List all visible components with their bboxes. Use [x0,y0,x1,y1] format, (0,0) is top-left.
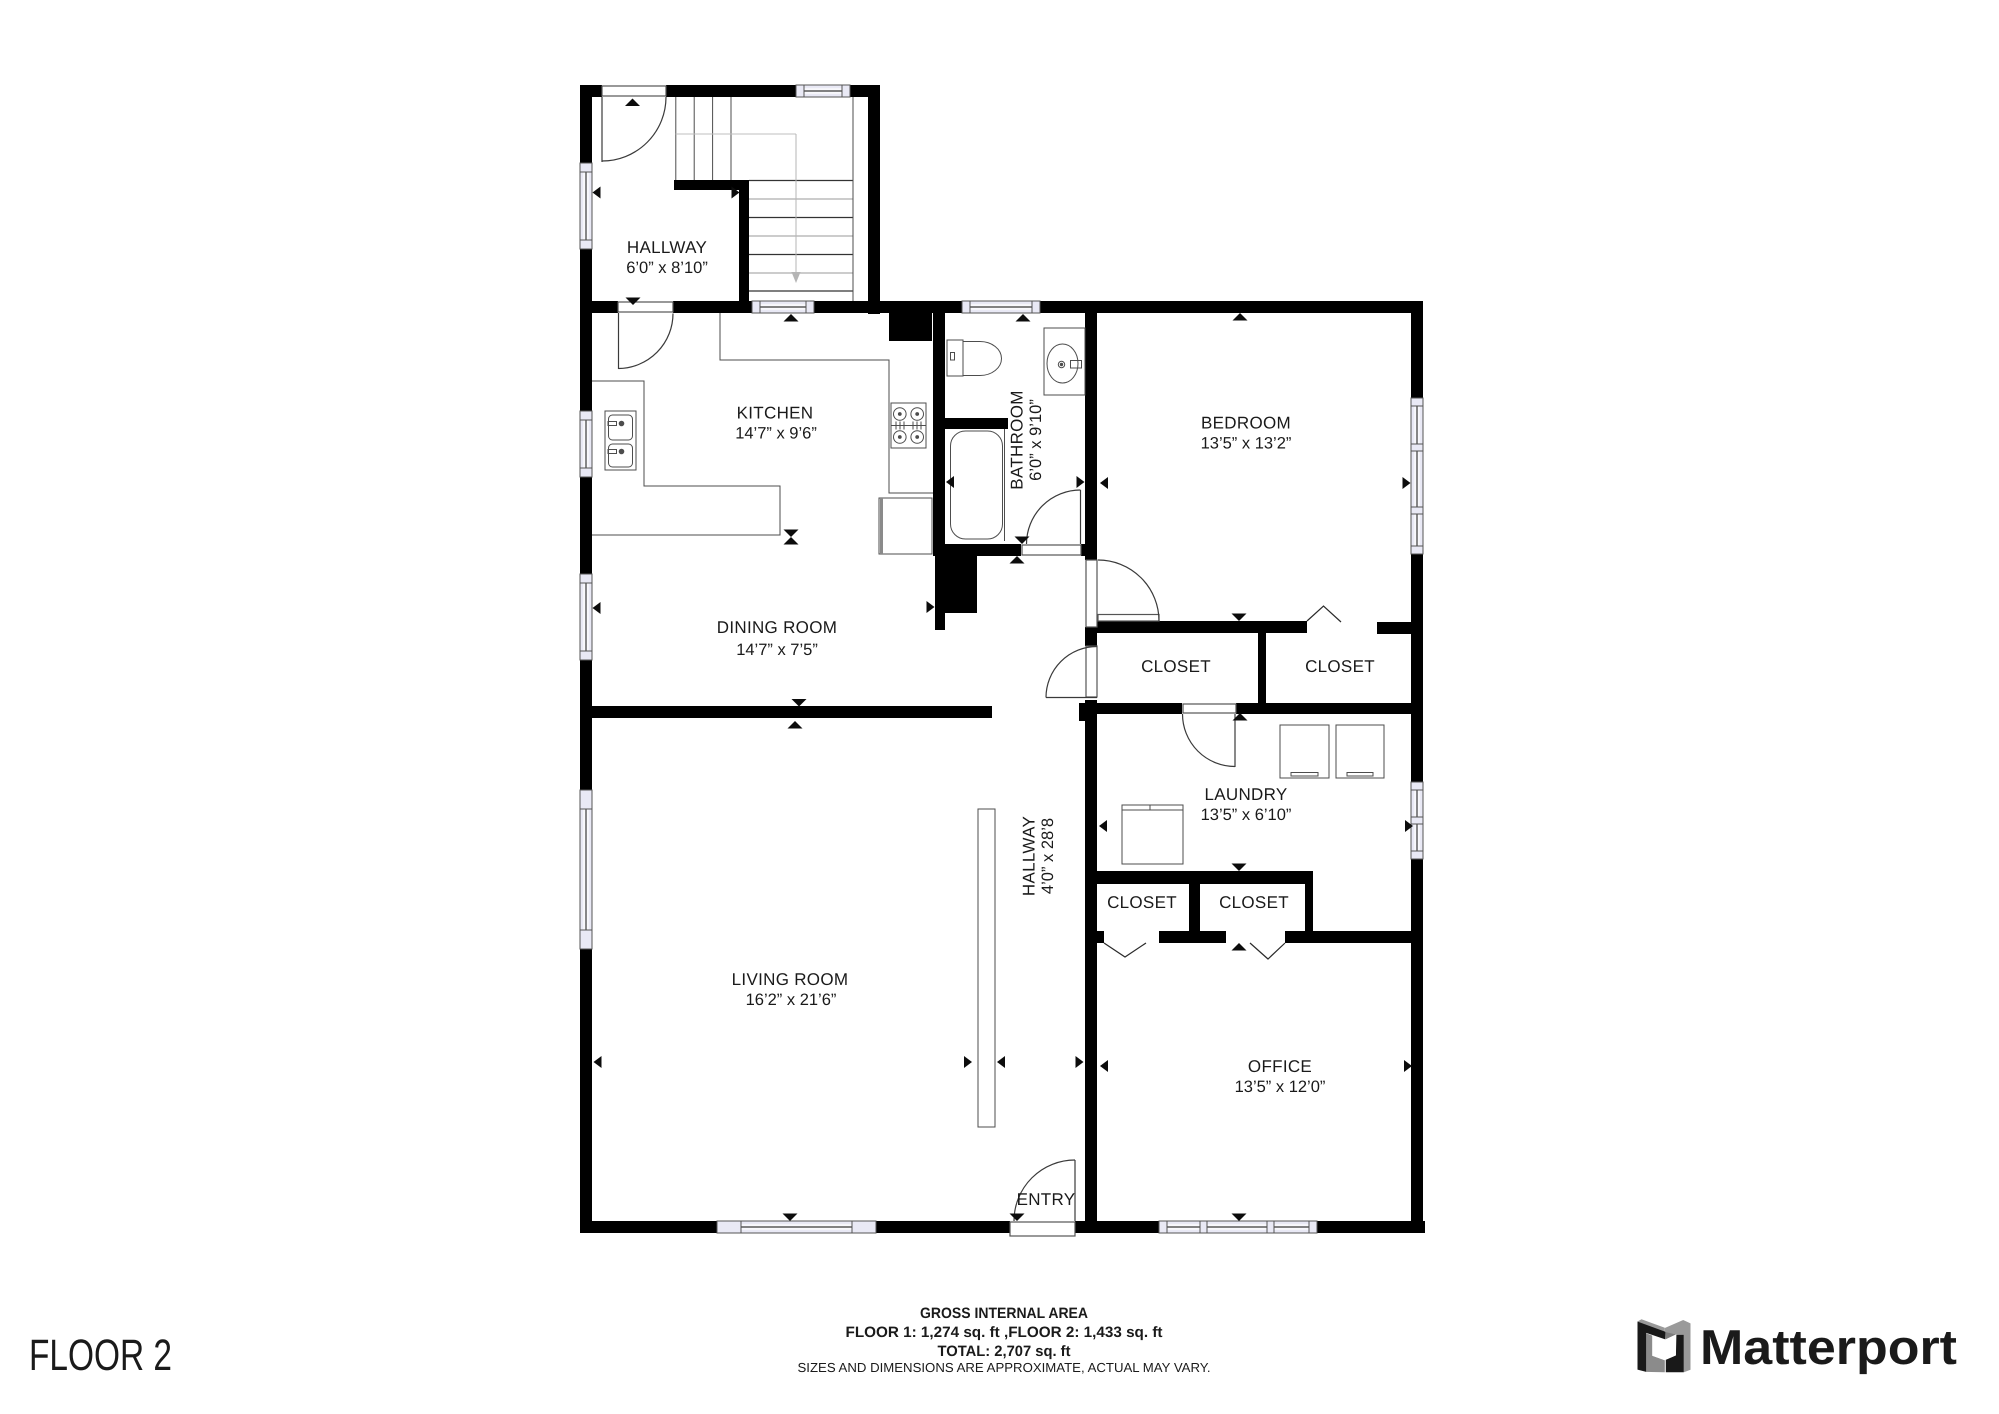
svg-text:SIZES AND DIMENSIONS ARE APPRO: SIZES AND DIMENSIONS ARE APPROXIMATE, AC… [798,1360,1211,1375]
svg-text:OFFICE: OFFICE [1248,1057,1312,1076]
svg-text:4’0” x 28’8: 4’0” x 28’8 [1039,818,1057,894]
svg-text:13’5” x 12’0”: 13’5” x 12’0” [1235,1078,1326,1096]
svg-text:HALLWAY: HALLWAY [1020,816,1039,896]
svg-text:16’2” x 21’6”: 16’2” x 21’6” [746,991,837,1009]
svg-text:CLOSET: CLOSET [1141,657,1211,676]
svg-text:13’5” x 13’2”: 13’5” x 13’2” [1201,435,1292,453]
svg-text:ENTRY: ENTRY [1017,1190,1076,1209]
svg-text:HALLWAY: HALLWAY [627,238,707,257]
svg-text:6’0” x 9’10”: 6’0” x 9’10” [1027,399,1045,481]
svg-text:LIVING ROOM: LIVING ROOM [732,970,849,989]
svg-text:GROSS INTERNAL AREA: GROSS INTERNAL AREA [920,1305,1088,1322]
svg-text:LAUNDRY: LAUNDRY [1204,785,1287,804]
svg-text:BATHROOM: BATHROOM [1008,390,1027,489]
svg-text:BEDROOM: BEDROOM [1201,414,1291,433]
svg-text:DINING ROOM: DINING ROOM [717,618,837,637]
svg-text:CLOSET: CLOSET [1219,893,1289,912]
svg-text:CLOSET: CLOSET [1107,893,1177,912]
svg-text:FLOOR 1: 1,274 sq. ft ,FLOOR 2: FLOOR 1: 1,274 sq. ft ,FLOOR 2: 1,433 sq… [846,1324,1163,1341]
svg-text:Matterport: Matterport [1700,1321,1957,1375]
svg-text:FLOOR 2: FLOOR 2 [29,1331,172,1380]
svg-text:TOTAL: 2,707 sq. ft: TOTAL: 2,707 sq. ft [938,1343,1071,1360]
svg-text:14’7” x 9’6”: 14’7” x 9’6” [735,425,817,443]
svg-text:14’7” x 7’5”: 14’7” x 7’5” [736,641,818,659]
svg-text:6’0” x 8’10”: 6’0” x 8’10” [626,259,708,277]
svg-text:13’5” x 6’10”: 13’5” x 6’10” [1201,806,1292,824]
svg-text:CLOSET: CLOSET [1305,657,1375,676]
svg-text:KITCHEN: KITCHEN [737,404,814,423]
